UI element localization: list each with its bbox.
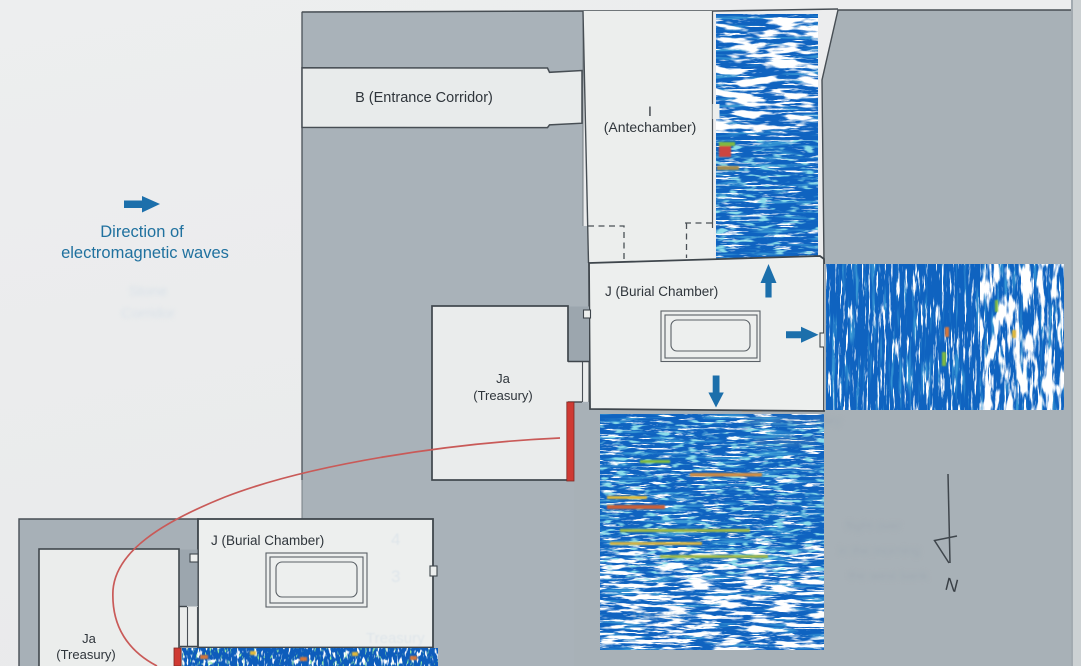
svg-text:Ja: Ja xyxy=(496,371,511,386)
svg-text:electromagnetic waves: electromagnetic waves xyxy=(61,244,229,262)
svg-text:I: I xyxy=(648,103,652,119)
svg-text:Direction of: Direction of xyxy=(100,223,184,241)
svg-text:Treasure: Treasure xyxy=(630,607,686,623)
svg-text:Corridor: Corridor xyxy=(121,305,175,322)
svg-text:Ja: Ja xyxy=(82,631,97,646)
svg-text:(Treasury): (Treasury) xyxy=(473,388,532,403)
svg-text:B (Entrance Corridor): B (Entrance Corridor) xyxy=(355,90,493,106)
svg-text:the west bank: the west bank xyxy=(848,568,929,583)
svg-text:4: 4 xyxy=(391,530,400,549)
svg-text:Stone: Stone xyxy=(128,283,167,300)
svg-text:in the morning: in the morning xyxy=(838,543,920,558)
svg-text:part of the Valley: part of the Valley xyxy=(745,413,842,428)
svg-text:air balloon: air balloon xyxy=(755,433,815,448)
svg-text:J (Burial Chamber): J (Burial Chamber) xyxy=(605,284,718,299)
svg-text:3: 3 xyxy=(391,567,400,586)
svg-text:(Treasury): (Treasury) xyxy=(56,647,115,662)
svg-text:Treasury: Treasury xyxy=(366,630,425,647)
svg-text:flight over: flight over xyxy=(845,518,902,533)
svg-text:J (Burial Chamber): J (Burial Chamber) xyxy=(211,533,324,548)
svg-text:(Antechamber): (Antechamber) xyxy=(604,119,697,135)
